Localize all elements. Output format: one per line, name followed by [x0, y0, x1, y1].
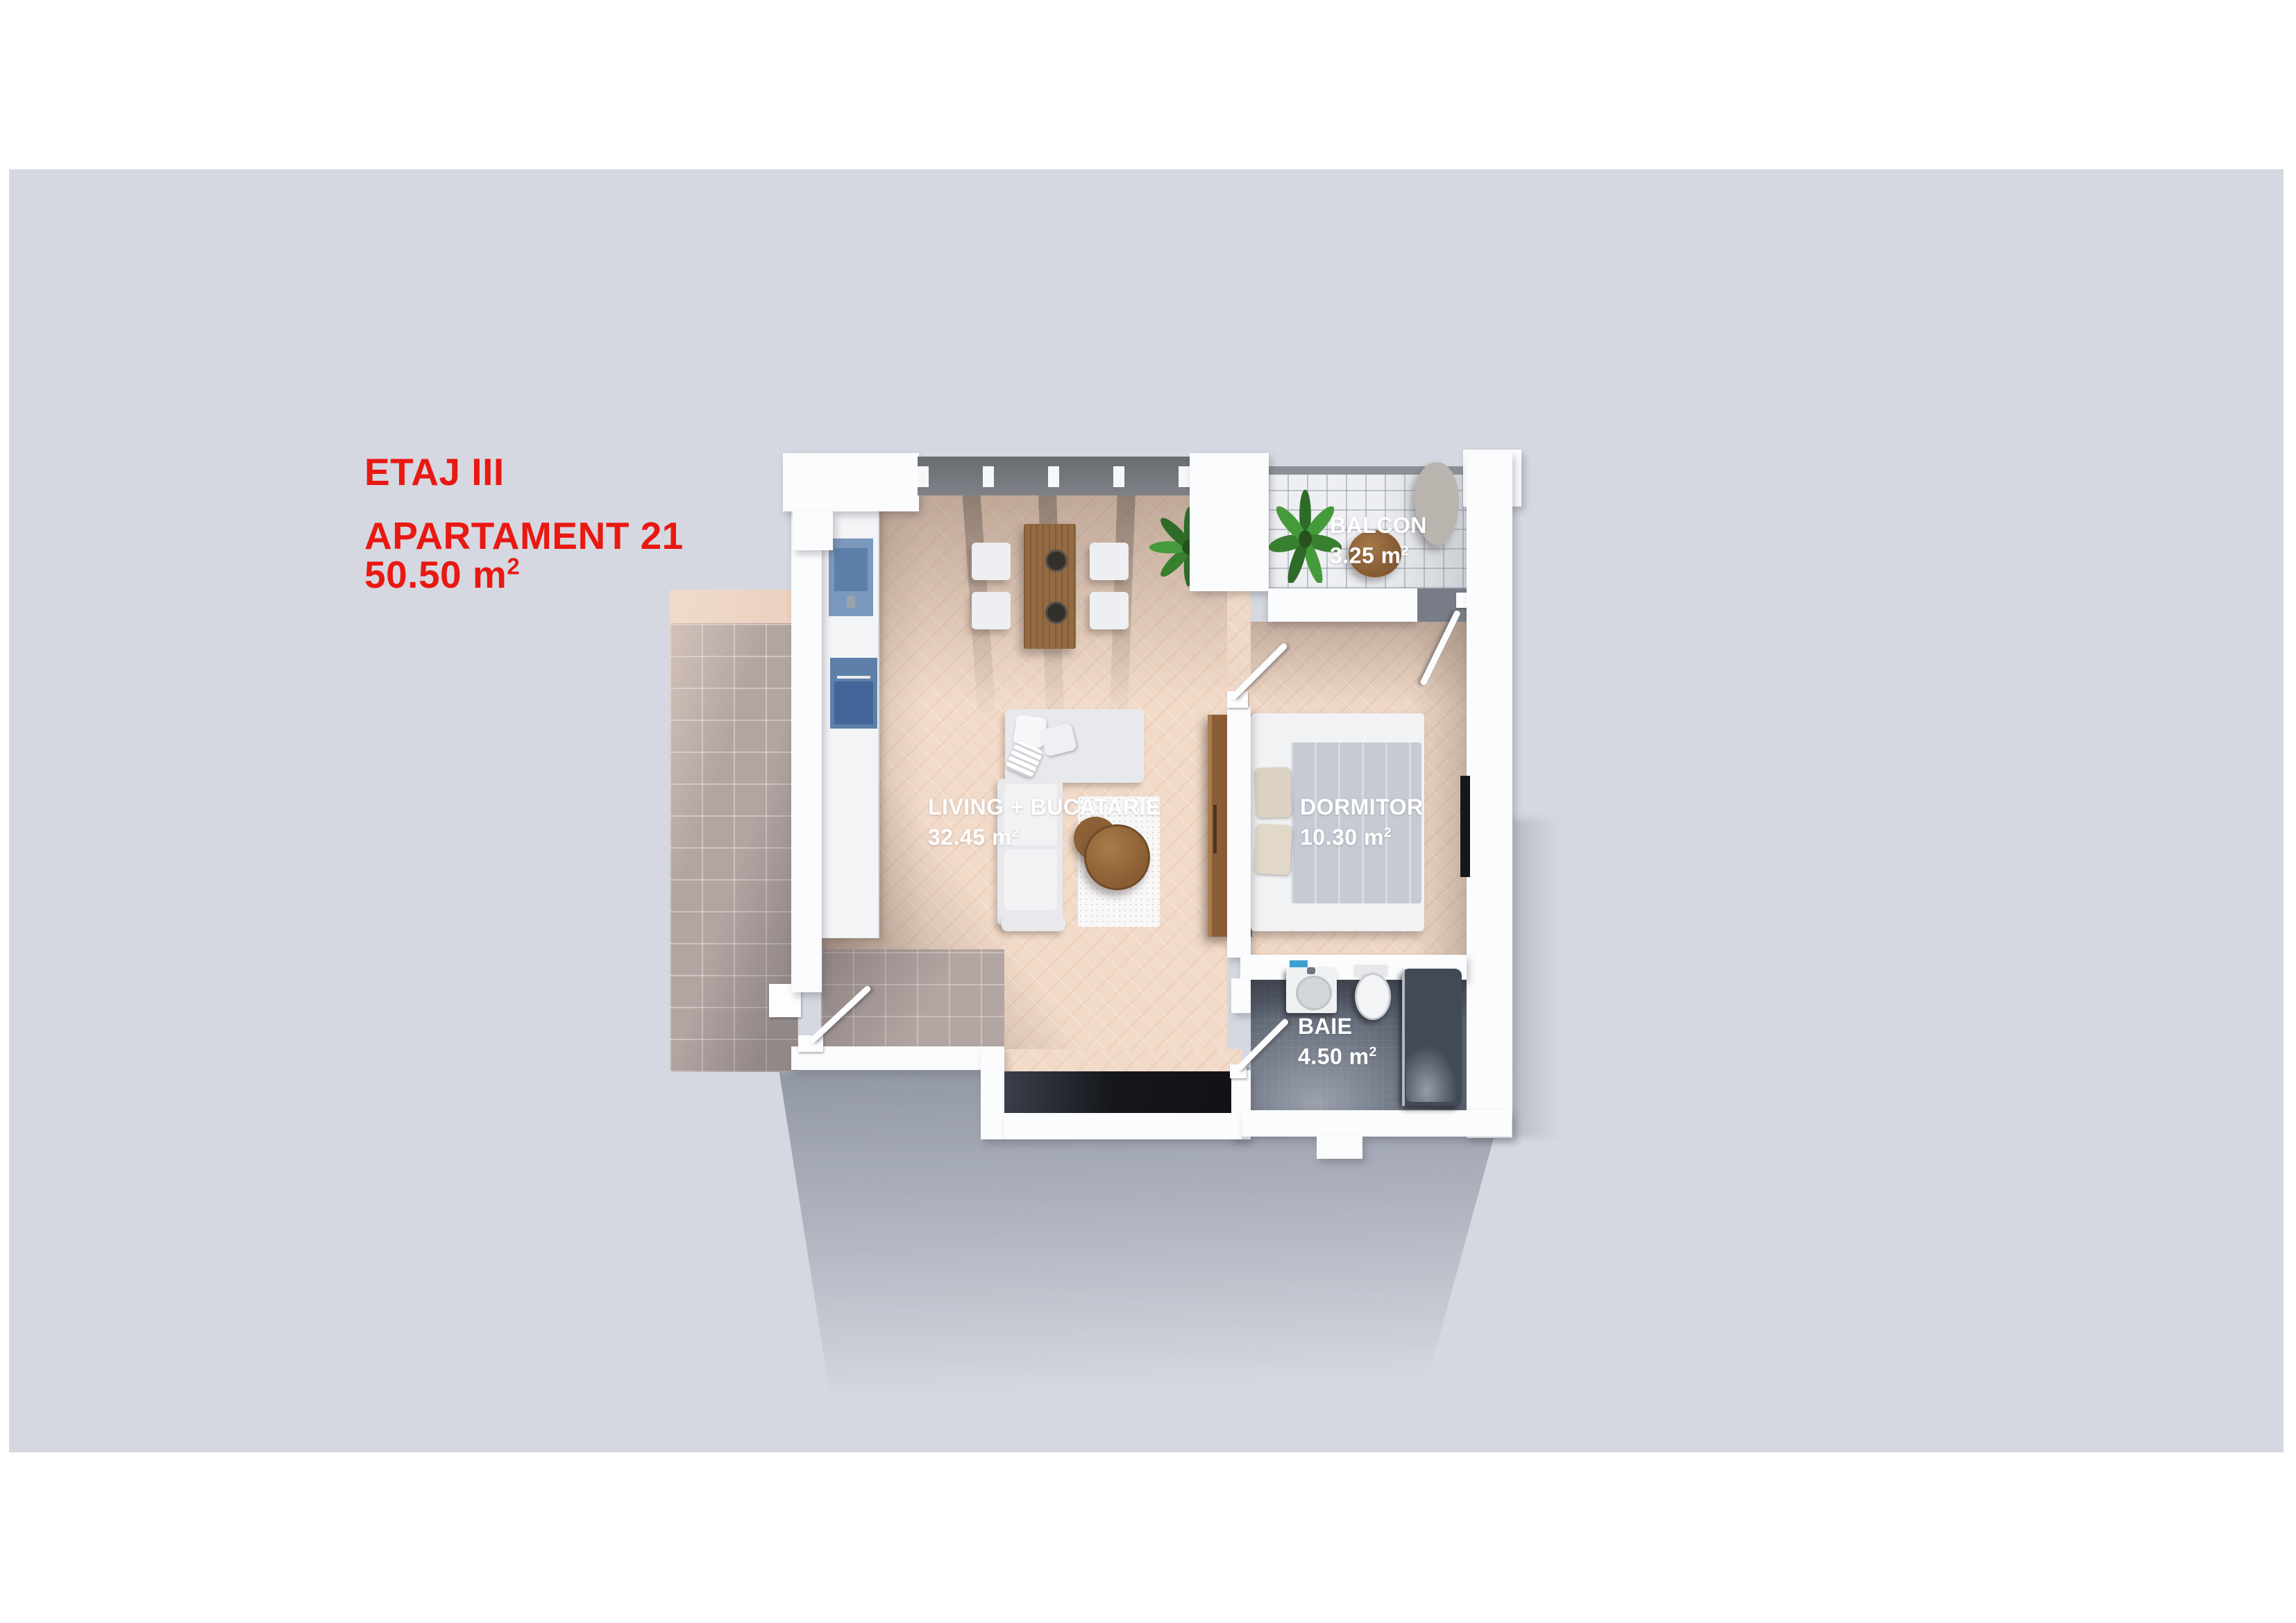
window-mullion — [983, 466, 994, 487]
room-label-living: LIVING + BUCATARIE 32.45 m2 — [928, 794, 1161, 851]
dining-chair — [972, 543, 1011, 580]
room-name: DORMITOR — [1300, 794, 1424, 820]
shower-glass — [1402, 969, 1405, 1106]
room-area-value: 10.30 m — [1300, 825, 1384, 850]
room-area-sup: 2 — [1401, 544, 1409, 559]
room-area: 10.30 m2 — [1300, 820, 1424, 851]
window-mullion — [1113, 466, 1124, 487]
wall-under-balcony — [1268, 588, 1417, 622]
apartment-area-value: 50.50 m — [364, 553, 507, 596]
window-band — [918, 457, 1190, 495]
room-area-sup: 2 — [1369, 1045, 1377, 1060]
wall-living-balcony — [1190, 453, 1269, 591]
room-label-balcon: BALCON 3.25 m2 — [1330, 512, 1427, 569]
wall-pillar — [793, 511, 833, 550]
room-area-sup: 2 — [1384, 826, 1392, 840]
window-mullion — [918, 466, 929, 487]
window-mullion — [1048, 466, 1059, 487]
wall-right — [1467, 453, 1512, 1138]
wall-top-left-corner — [783, 453, 919, 511]
wall-step — [981, 1046, 1004, 1139]
dining-chair — [1090, 592, 1129, 629]
oven-handle — [837, 676, 870, 679]
sink-basin — [834, 548, 868, 591]
room-name: LIVING + BUCATARIE — [928, 794, 1161, 820]
shower-tub — [1402, 969, 1462, 1106]
bed-pillow — [1253, 824, 1292, 876]
floor-plan-page: ETAJ III APARTAMENT 21 50.50 m2 — [0, 0, 2296, 1623]
hall-dark-floor — [1004, 1071, 1242, 1113]
room-name: BALCON — [1330, 512, 1427, 538]
room-name: BAIE — [1298, 1013, 1377, 1039]
terrace-top-strip — [670, 590, 798, 623]
sofa-cushion — [1004, 849, 1057, 910]
room-area: 4.50 m2 — [1298, 1039, 1377, 1070]
oven-door — [834, 681, 873, 724]
shower-light — [1406, 1045, 1458, 1102]
room-area-value: 3.25 m — [1330, 543, 1401, 568]
bed-pillow — [1254, 767, 1292, 818]
room-area-sup: 2 — [1012, 826, 1020, 840]
bedroom-window — [1460, 776, 1470, 877]
entry-tile-shadow — [821, 949, 1004, 1049]
wall-bath-bottom — [1242, 1110, 1512, 1137]
wall-stub — [1317, 1135, 1362, 1159]
bath-accessory — [1290, 960, 1308, 967]
room-area-value: 32.45 m — [928, 825, 1012, 850]
room-area: 32.45 m2 — [928, 820, 1161, 851]
room-area-value: 4.50 m — [1298, 1044, 1369, 1069]
wall-bath-left-upper — [1231, 978, 1251, 1013]
sink-faucet — [1307, 967, 1315, 974]
wall-hall-bottom — [1004, 1113, 1242, 1139]
room-area: 3.25 m2 — [1330, 538, 1427, 569]
room-label-baie: BAIE 4.50 m2 — [1298, 1013, 1377, 1070]
sink-faucet — [847, 595, 855, 608]
dining-chair — [972, 592, 1011, 629]
wall-living-bedroom — [1227, 706, 1251, 958]
wardrobe-handle — [1213, 805, 1217, 853]
apartment-area-sup: 2 — [507, 554, 520, 579]
plate — [1045, 602, 1067, 624]
sofa-armrest — [1002, 916, 1065, 931]
bathroom-sink — [1286, 967, 1337, 1013]
apartment-title: APARTAMENT 21 — [364, 513, 684, 558]
sink-bowl — [1296, 976, 1332, 1010]
plate — [1045, 550, 1067, 572]
room-label-dormitor: DORMITOR 10.30 m2 — [1300, 794, 1424, 851]
kitchen-stove — [830, 658, 877, 729]
apartment-area: 50.50 m2 — [364, 552, 520, 597]
kitchen-sink — [829, 538, 873, 616]
dining-chair — [1090, 543, 1129, 580]
dining-table — [1024, 524, 1076, 649]
living-floor-extension — [1004, 1049, 1242, 1073]
building-shadow-right — [1512, 819, 1562, 1138]
floor-title: ETAJ III — [364, 450, 505, 494]
window-mullion — [1179, 466, 1190, 487]
entry-tile-floor — [821, 949, 1004, 1049]
